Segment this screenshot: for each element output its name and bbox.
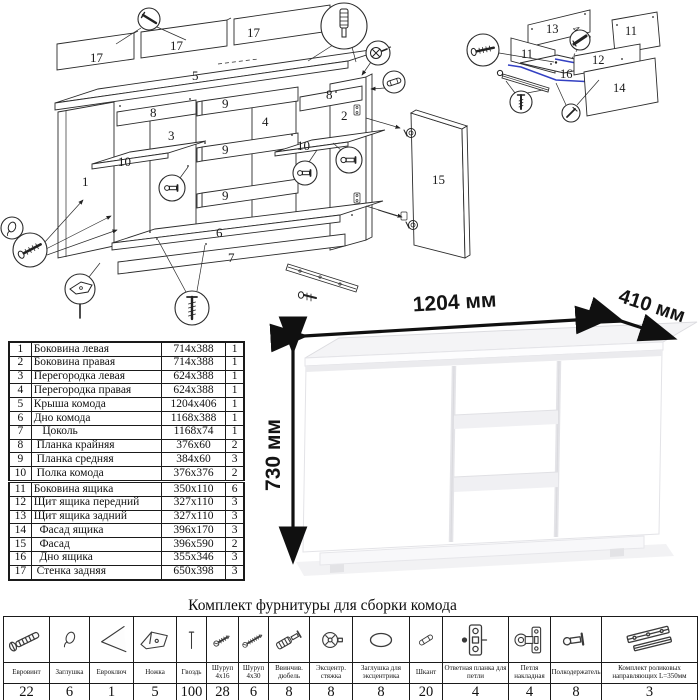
part-quantity: 3 xyxy=(226,565,244,579)
part-dimensions: 650x398 xyxy=(161,565,226,579)
exploded-view-drawer: 13 11 11 16 12 14 4х30 xyxy=(467,10,660,122)
hardware-item-label: Петля накладная xyxy=(509,663,551,684)
part-quantity: 1 xyxy=(226,425,244,439)
hardware-labels-row: Евровинт Заглушка Евроключ Ножка Гвоздь … xyxy=(4,663,698,684)
part-number: 8 xyxy=(9,439,31,453)
hardware-icons-row xyxy=(4,617,698,663)
part-label-3: 3 xyxy=(168,128,175,143)
part-name: Дно ящика xyxy=(31,551,161,565)
eccentric-cam-icon xyxy=(323,632,343,647)
hardware-icon-cell xyxy=(602,617,698,663)
part-dimensions: 327x110 xyxy=(161,510,226,524)
dimension-height: 730 мм xyxy=(262,350,293,560)
part-label-4: 4 xyxy=(262,114,269,129)
part-name: Щит ящика задний xyxy=(31,510,161,524)
part-number: 9 xyxy=(9,453,31,467)
parts-table-row: 15 Фасад 396x590 2 xyxy=(9,538,244,552)
parts-table-row: 8 Планка крайняя 376x60 2 xyxy=(9,439,244,453)
part-number: 7 xyxy=(9,425,31,439)
parts-table-row: 2 Боковина правая 714x388 1 xyxy=(9,356,244,370)
hardware-item-quantity: 3 xyxy=(602,684,698,700)
part-quantity: 1 xyxy=(226,342,244,356)
parts-table-row: 13 Щит ящика задний 327x110 3 xyxy=(9,510,244,524)
hardware-item-label: Полкодержатель xyxy=(551,663,602,684)
part-quantity: 1 xyxy=(226,411,244,425)
part-quantity: 1 xyxy=(226,398,244,412)
part-name: Фасад xyxy=(31,538,161,552)
part-number: 10 xyxy=(9,467,31,482)
part-label-15: 15 xyxy=(432,172,445,187)
part-dimensions: 350x110 xyxy=(161,481,226,496)
hardware-item-quantity: 100 xyxy=(177,684,207,700)
hinge-icon xyxy=(515,627,541,653)
part-name: Планка крайняя xyxy=(31,439,161,453)
screw-icon xyxy=(298,292,316,301)
hardware-item-label: Ответная планка для петли xyxy=(443,663,509,684)
hardware-icon-cell xyxy=(310,617,353,663)
eccentric-cap-icon xyxy=(371,633,392,646)
foot-callout xyxy=(65,263,100,318)
hardware-item-label: Евроключ xyxy=(90,663,134,684)
hardware-item-label: Ножка xyxy=(134,663,177,684)
roller-rail-icon xyxy=(497,70,549,92)
hardware-item-quantity: 8 xyxy=(551,684,602,700)
part-number: 4 xyxy=(9,384,31,398)
parts-table-row: 3 Перегородка левая 624x388 1 xyxy=(9,370,244,384)
hardware-item-quantity: 6 xyxy=(239,684,269,700)
hardware-item-label: Заглушка xyxy=(50,663,90,684)
hardware-item-quantity: 4 xyxy=(443,684,509,700)
part-dimensions: 1168x74 xyxy=(161,425,226,439)
part-quantity: 3 xyxy=(226,453,244,467)
part-number: 13 xyxy=(9,510,31,524)
part-label-2: 2 xyxy=(341,108,348,123)
part-label-14: 14 xyxy=(613,81,626,95)
part-label-11r: 11 xyxy=(625,24,637,38)
screw-4x30-icon xyxy=(242,633,263,648)
part-label-10a: 10 xyxy=(118,154,131,169)
part-label-10b: 10 xyxy=(297,138,310,153)
product-render: 1204 мм 410 мм 730 мм xyxy=(262,285,697,576)
cap-icon xyxy=(63,630,76,648)
hardware-quantities-row: 22 6 1 5 100 28 6 8 8 8 20 4 4 8 3 xyxy=(4,684,698,700)
screw-4x16-icon xyxy=(213,633,231,646)
hardware-item-label: Комплект роликовых направляющих L=350мм xyxy=(602,663,698,684)
hardware-item-quantity: 20 xyxy=(410,684,443,700)
hardware-item-quantity: 8 xyxy=(269,684,310,700)
hardware-item-quantity: 1 xyxy=(90,684,134,700)
parts-table-row: 17 Стенка задняя 650x398 3 xyxy=(9,565,244,579)
hardware-icon-cell xyxy=(90,617,134,663)
part-dimensions: 376x60 xyxy=(161,439,226,453)
part-name: Крыша комода xyxy=(31,398,161,412)
part-label-5: 5 xyxy=(192,68,199,83)
parts-table-row: 5 Крыша комода 1204x406 1 xyxy=(9,398,244,412)
part-number: 3 xyxy=(9,370,31,384)
eccentric-cam-callout xyxy=(362,41,390,75)
part-name: Щит ящика передний xyxy=(31,496,161,510)
hardware-item-label: Шуруп 4х16 xyxy=(207,663,239,684)
parts-table-row: 16 Дно ящика 355x346 3 xyxy=(9,551,244,565)
parts-table-row: 7 Цоколь 1168x74 1 xyxy=(9,425,244,439)
part-number: 11 xyxy=(9,481,31,496)
part-name: Перегородка правая xyxy=(31,384,161,398)
hardware-item-label: Евровинт xyxy=(4,663,50,684)
hardware-icon-cell xyxy=(50,617,90,663)
hardware-item-label: Ввинчив. дюбель xyxy=(269,663,310,684)
part-quantity: 1 xyxy=(226,384,244,398)
part-dimensions: 327x110 xyxy=(161,496,226,510)
hardware-item-label: Эксцентр. стяжка xyxy=(310,663,353,684)
part-quantity: 1 xyxy=(226,370,244,384)
part-quantity: 6 xyxy=(226,481,244,496)
part-quantity: 3 xyxy=(226,510,244,524)
part-name: Боковина левая xyxy=(31,342,161,356)
parts-table-row: 1 Боковина левая 714x388 1 xyxy=(9,342,244,356)
height-dimension-label: 730 мм xyxy=(262,419,285,491)
hardware-kit-title: Комплект фурнитуры для сборки комода xyxy=(0,597,645,615)
part-label-9a: 9 xyxy=(222,96,229,111)
hardware-icon-cell xyxy=(4,617,50,663)
part-label-17a: 17 xyxy=(90,50,104,65)
shelf-pin-icon xyxy=(563,633,583,647)
nail-icon xyxy=(189,632,193,648)
part-name: Стенка задняя xyxy=(31,565,161,579)
hardware-icon-cell xyxy=(239,617,269,663)
cap-callout xyxy=(1,217,23,239)
parts-table-row: 4 Перегородка правая 624x388 1 xyxy=(9,384,244,398)
part-label-13: 13 xyxy=(546,22,559,36)
hardware-item-label: Гвоздь xyxy=(177,663,207,684)
part-label-16: 16 xyxy=(560,67,573,81)
hardware-item-quantity: 28 xyxy=(207,684,239,700)
part-label-9b: 9 xyxy=(222,142,229,157)
part-name: Боковина ящика xyxy=(31,481,161,496)
part-quantity: 3 xyxy=(226,551,244,565)
part-quantity: 1 xyxy=(226,356,244,370)
part-quantity: 2 xyxy=(226,538,244,552)
roller-rails-icon xyxy=(627,626,672,652)
part-quantity: 3 xyxy=(226,524,244,538)
part-number: 6 xyxy=(9,411,31,425)
part-dimensions: 714x388 xyxy=(161,342,226,356)
threaded-dowel-icon xyxy=(276,631,301,649)
hinge-plate-icon xyxy=(378,210,407,220)
parts-table-row: 12 Щит ящика передний 327x110 3 xyxy=(9,496,244,510)
part-dimensions: 376x376 xyxy=(161,467,226,482)
part-dimensions: 355x346 xyxy=(161,551,226,565)
width-dimension-label: 1204 мм xyxy=(412,288,497,316)
part-dimensions: 396x590 xyxy=(161,538,226,552)
parts-table-row: 11 Боковина ящика 350x110 6 xyxy=(9,481,244,496)
parts-table-row: 6 Дно комода 1168x388 1 xyxy=(9,411,244,425)
wood-dowel-icon xyxy=(419,634,434,646)
part-label-8a: 8 xyxy=(150,105,157,120)
part-number: 15 xyxy=(9,538,31,552)
part-quantity: 2 xyxy=(226,467,244,482)
hardware-icon-cell xyxy=(353,617,410,663)
hardware-item-quantity: 22 xyxy=(4,684,50,700)
part-number: 17 xyxy=(9,565,31,579)
part-dimensions: 624x388 xyxy=(161,370,226,384)
part-name: Фасад ящика xyxy=(31,524,161,538)
part-dimensions: 624x388 xyxy=(161,384,226,398)
part-label-8b: 8 xyxy=(326,87,333,102)
part-label-11l: 11 xyxy=(521,47,533,61)
part-number: 14 xyxy=(9,524,31,538)
roller-rail-icon xyxy=(286,264,358,292)
part-number: 12 xyxy=(9,496,31,510)
hardware-icon-cell xyxy=(551,617,602,663)
wood-dowel-callout xyxy=(371,71,405,93)
part-name: Полка комода xyxy=(31,467,161,482)
hardware-icon-cell xyxy=(207,617,239,663)
part-name: Перегородка левая xyxy=(31,370,161,384)
part-dimensions: 1168x388 xyxy=(161,411,226,425)
part-dimensions: 714x388 xyxy=(161,356,226,370)
hardware-icon-cell xyxy=(509,617,551,663)
exploded-view-main: 17 17 17 5 1 3 2 9 9 9 4 8 8 xyxy=(1,3,470,325)
part-label-17b: 17 xyxy=(170,38,184,53)
part-label-17c: 17 xyxy=(247,25,261,40)
part-name: Дно комода xyxy=(31,411,161,425)
part-number: 16 xyxy=(9,551,31,565)
hardware-item-label: Заглушка для эксцентрика xyxy=(353,663,410,684)
hardware-icon-cell xyxy=(177,617,207,663)
part-quantity: 2 xyxy=(226,439,244,453)
hardware-icon-cell xyxy=(443,617,509,663)
hardware-icon-cell xyxy=(134,617,177,663)
part-label-9c: 9 xyxy=(222,188,229,203)
parts-table-row: 9 Планка средняя 384x60 3 xyxy=(9,453,244,467)
hardware-item-quantity: 8 xyxy=(353,684,410,700)
shelf-pin-callout xyxy=(293,150,317,185)
part-name: Планка средняя xyxy=(31,453,161,467)
assembly-instruction-sheet: 17 17 17 5 1 3 2 9 9 9 4 8 8 xyxy=(0,0,700,700)
part-name: Боковина правая xyxy=(31,356,161,370)
hardware-icon-cell xyxy=(269,617,310,663)
hardware-item-quantity: 5 xyxy=(134,684,177,700)
part-label-7: 7 xyxy=(228,250,235,265)
part-number: 1 xyxy=(9,342,31,356)
hinge-plate-icon xyxy=(463,625,487,655)
part-label-12: 12 xyxy=(592,53,605,67)
parts-table-row: 14 Фасад ящика 396x170 3 xyxy=(9,524,244,538)
hardware-item-quantity: 8 xyxy=(310,684,353,700)
part-number: 5 xyxy=(9,398,31,412)
hardware-item-label: Шкант xyxy=(410,663,443,684)
part-dimensions: 396x170 xyxy=(161,524,226,538)
depth-dimension-label: 410 мм xyxy=(616,285,688,327)
parts-list-table: 1 Боковина левая 714x388 1 2 Боковина пр… xyxy=(8,341,245,581)
part-dimensions: 1204x406 xyxy=(161,398,226,412)
parts-table-row: 10 Полка комода 376x376 2 xyxy=(9,467,244,482)
part-name: Цоколь xyxy=(31,425,161,439)
part-number: 2 xyxy=(9,356,31,370)
hardware-item-label: Шуруп 4х30 xyxy=(239,663,269,684)
part-label-1: 1 xyxy=(82,174,89,189)
hardware-icon-cell xyxy=(410,617,443,663)
euro-screw-icon xyxy=(8,630,40,652)
part-label-6: 6 xyxy=(216,225,223,240)
part-dimensions: 384x60 xyxy=(161,453,226,467)
hardware-item-quantity: 6 xyxy=(50,684,90,700)
hardware-kit-table: Евровинт Заглушка Евроключ Ножка Гвоздь … xyxy=(3,616,698,700)
part-quantity: 3 xyxy=(226,496,244,510)
hardware-item-quantity: 4 xyxy=(509,684,551,700)
hex-key-icon xyxy=(102,626,126,651)
foot-icon xyxy=(141,632,167,649)
